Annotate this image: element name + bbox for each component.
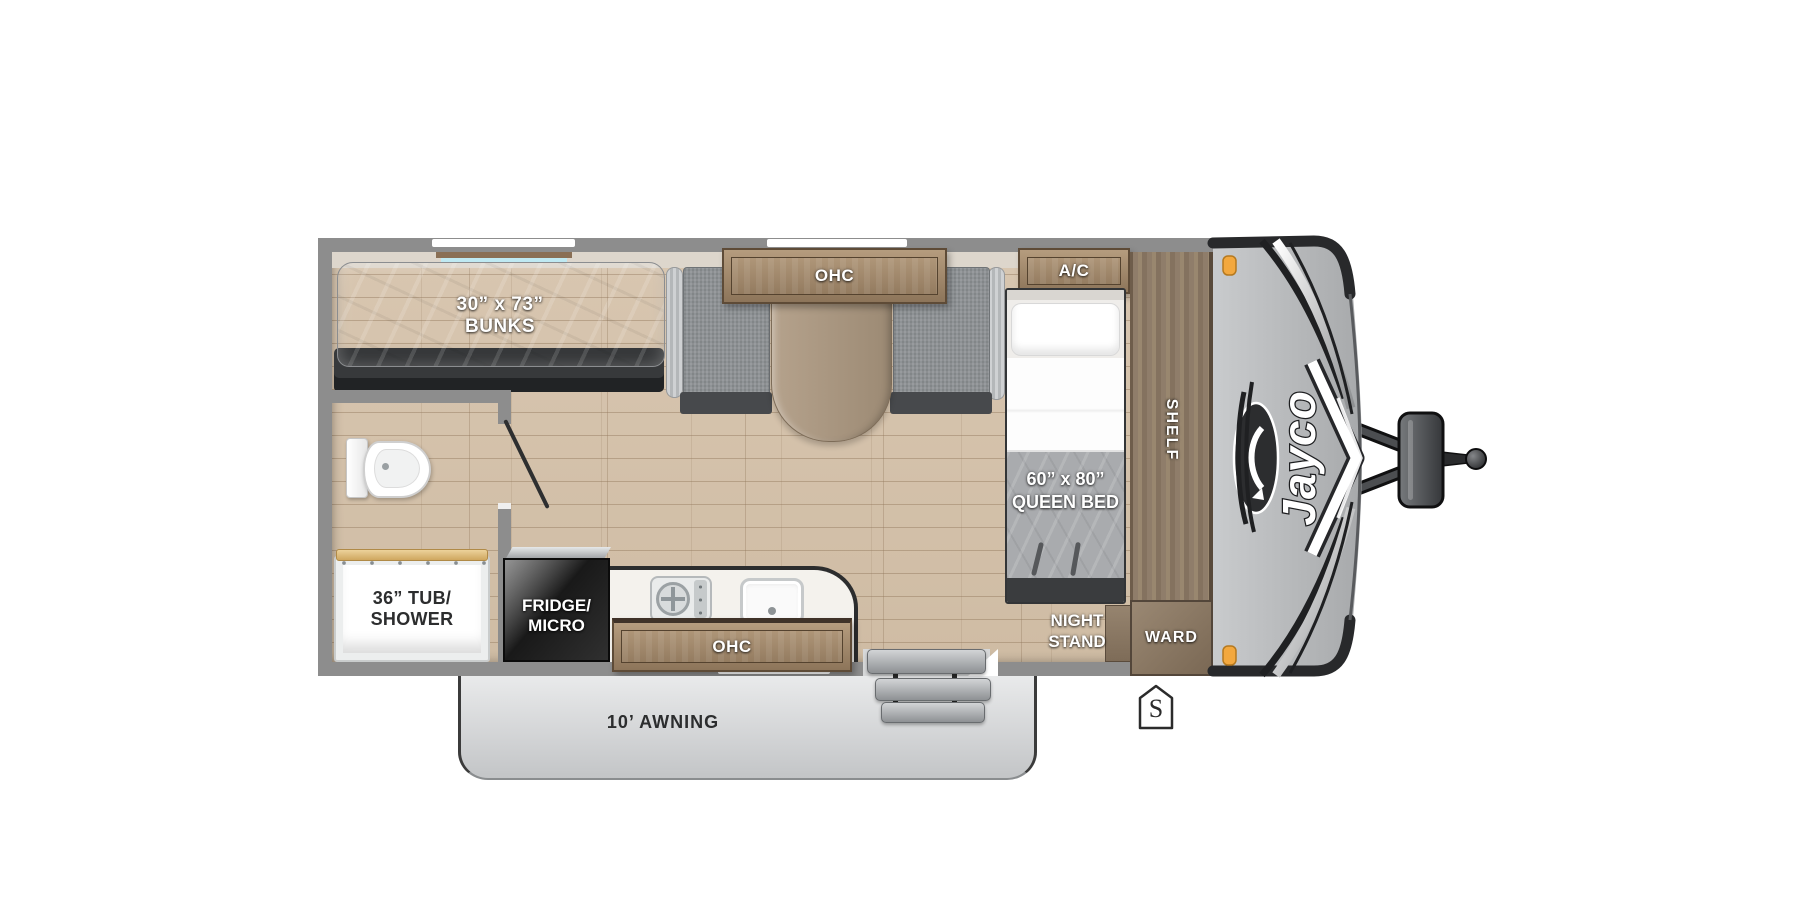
marker-light-top	[1223, 256, 1236, 275]
queen-bed	[1005, 288, 1126, 604]
blanket-curl	[1031, 542, 1044, 576]
marker-light-bottom	[1223, 646, 1236, 665]
fridge-label-line1: FRIDGE/	[503, 596, 610, 616]
night-stand-label-line1: NIGHT	[1012, 610, 1142, 631]
night-stand-label-line2: STAND	[1012, 631, 1142, 652]
dinette-ohc-label: OHC	[815, 266, 854, 286]
toilet-flush-button	[382, 463, 389, 470]
cooktop-knobs	[694, 580, 707, 618]
dinette-bolster-left	[666, 267, 683, 398]
hitch-ball	[1466, 449, 1486, 469]
bunks-label-size: 30” x 73”	[337, 294, 663, 316]
sink-drain	[768, 607, 776, 615]
bed-pillow-zone	[1007, 300, 1124, 358]
burner-grate-v	[671, 587, 675, 611]
bunks-label: 30” x 73” BUNKS	[337, 294, 663, 338]
dinette-bolster-right	[988, 267, 1005, 400]
entry-step-3	[881, 702, 985, 723]
queen-label-name: QUEEN BED	[1005, 491, 1126, 514]
bunks-label-name: BUNKS	[337, 316, 663, 338]
hitch-jack-highlight	[1408, 420, 1413, 500]
night-stand-label: NIGHT STAND	[1012, 610, 1142, 652]
dinette-seat-right-base	[890, 392, 992, 414]
brand-logo-text: Jayco	[1273, 390, 1325, 525]
tub-label-size: 36” TUB/	[334, 588, 490, 609]
fridge-label: FRIDGE/ MICRO	[503, 596, 610, 636]
entry-step-1	[867, 649, 986, 674]
floorplan-canvas: 30” x 73” BUNKS 36” TUB/ SHOWER FRIDGE/ …	[0, 0, 1800, 920]
entry-step-2	[875, 678, 991, 701]
bathroom-side-wall-cap	[498, 503, 511, 509]
spare-marker-letter: S	[1149, 694, 1163, 723]
fridge-label-line2: MICRO	[503, 616, 610, 636]
spare-tire-marker: S	[1138, 684, 1174, 730]
bed-headboard	[1007, 290, 1124, 300]
bed-pillow	[1011, 303, 1120, 356]
bathroom-wall	[332, 390, 511, 403]
tub-label-name: SHOWER	[334, 609, 490, 630]
queen-bed-label: 60” x 80” QUEEN BED	[1005, 468, 1126, 514]
kitchen-overhead-cabinet: OHC	[612, 618, 852, 672]
blanket-curl	[1070, 542, 1081, 576]
ac-label: A/C	[1059, 261, 1090, 281]
dinette-overhead-cabinet: OHC	[722, 248, 947, 304]
front-cap-and-hitch: Jayco	[1195, 228, 1495, 688]
tub-label: 36” TUB/ SHOWER	[334, 588, 490, 630]
dinette-seat-left-base	[680, 392, 772, 414]
queen-label-size: 60” x 80”	[1005, 468, 1126, 491]
window-dinette	[767, 239, 907, 247]
window-bunk	[432, 239, 575, 247]
bed-sheet	[1007, 358, 1124, 452]
bed-foot	[1007, 578, 1124, 602]
hitch-tongue	[1441, 452, 1468, 466]
shower-curtain-rings	[340, 559, 486, 567]
shelf-label: SHELF	[1162, 399, 1180, 461]
wall-rear	[318, 238, 332, 676]
wardrobe-label: WARD	[1145, 629, 1198, 647]
kitchen-ohc-label: OHC	[712, 637, 751, 657]
hitch-jack	[1399, 413, 1443, 507]
toilet-seat	[374, 449, 420, 488]
awning-label: 10’ AWNING	[458, 712, 868, 733]
